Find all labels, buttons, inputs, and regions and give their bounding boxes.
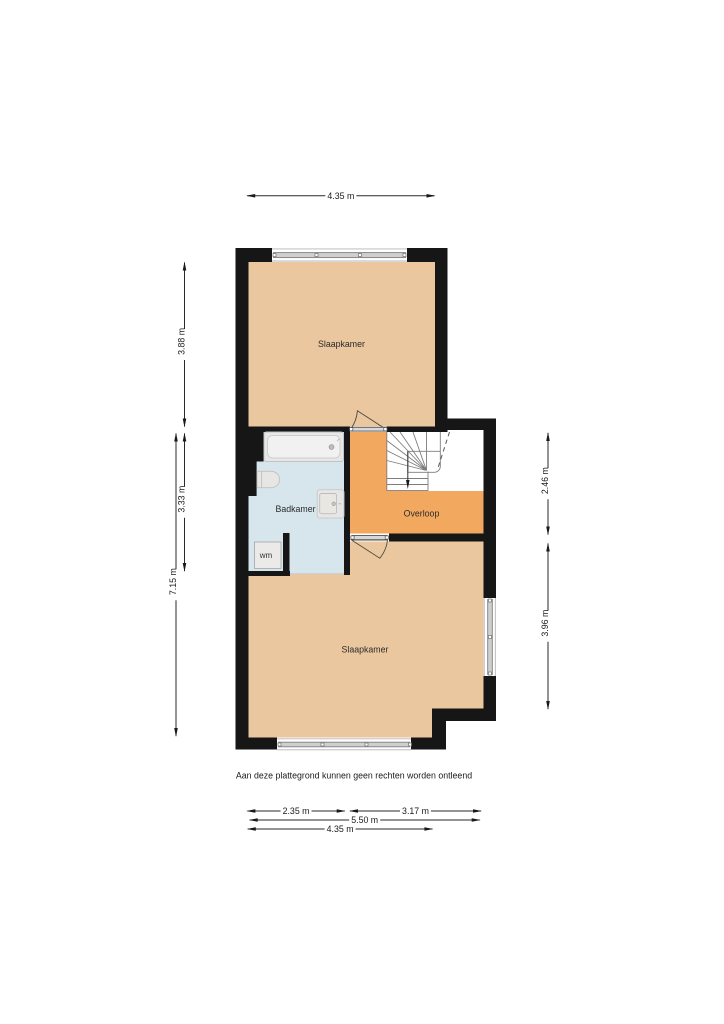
svg-text:Overloop: Overloop	[404, 509, 440, 519]
svg-text:3.88 m: 3.88 m	[177, 328, 187, 355]
svg-text:Badkamer: Badkamer	[275, 504, 315, 514]
svg-text:2.46 m: 2.46 m	[540, 467, 550, 494]
svg-text:Slaapkamer: Slaapkamer	[342, 645, 389, 655]
svg-text:Slaapkamer: Slaapkamer	[318, 339, 365, 349]
svg-text:wm: wm	[259, 551, 273, 560]
svg-text:4.35 m: 4.35 m	[327, 191, 354, 201]
svg-text:2.35 m: 2.35 m	[283, 806, 310, 816]
svg-text:Aan deze plattegrond kunnen ge: Aan deze plattegrond kunnen geen rechten…	[236, 771, 472, 781]
svg-text:7.15 m: 7.15 m	[168, 568, 178, 595]
svg-text:4.35 m: 4.35 m	[327, 824, 354, 834]
svg-text:3.17 m: 3.17 m	[402, 806, 429, 816]
svg-text:3.96 m: 3.96 m	[540, 610, 550, 637]
svg-text:3.33 m: 3.33 m	[177, 486, 187, 513]
